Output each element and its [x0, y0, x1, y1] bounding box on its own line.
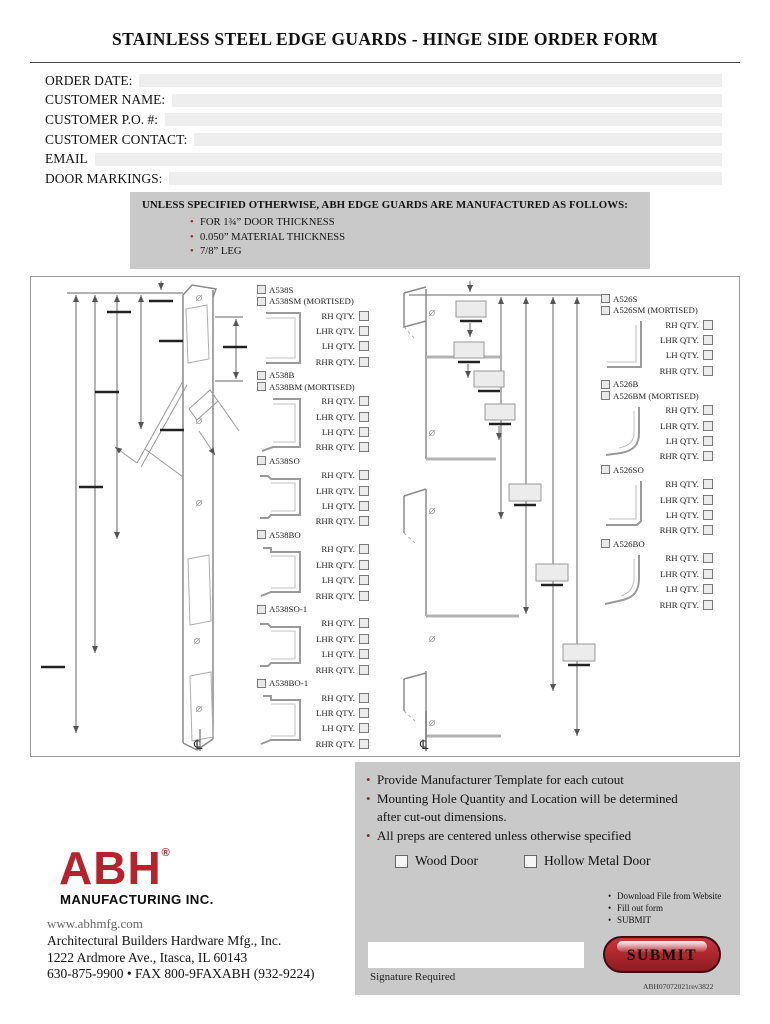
model-checkbox-a538bm[interactable] — [257, 382, 266, 391]
notice-bullet: 0.050” MATERIAL THICKNESS — [190, 231, 640, 246]
model-row: A526BM (MORTISED) — [601, 390, 713, 402]
customer-po-label: CUSTOMER P.O. #: — [45, 112, 158, 128]
qty-row: LHR QTY. — [305, 409, 369, 424]
qty-rows: RH QTY.LHR QTY.LH QTY.RHR QTY. — [305, 690, 369, 752]
field-row: ORDER DATE: — [45, 71, 722, 91]
qty-row: RH QTY. — [649, 551, 713, 566]
qty-label: RHR QTY. — [316, 357, 355, 367]
qty-input-a538so-1-rhrqty[interactable] — [359, 665, 369, 675]
qty-input-a538s-lhqty[interactable] — [359, 341, 369, 351]
qty-label: RHR QTY. — [316, 591, 355, 601]
notice-bullets: FOR 1¾” DOOR THICKNESS 0.050” MATERIAL T… — [190, 216, 640, 260]
qty-rows: RH QTY.LHR QTY.LH QTY.RHR QTY. — [305, 616, 369, 678]
qty-rows: RH QTY.LHR QTY.LH QTY.RHR QTY. — [649, 317, 713, 379]
email-label: EMAIL — [45, 151, 88, 167]
qty-label: LH QTY. — [322, 341, 355, 351]
qty-label: LH QTY. — [666, 436, 699, 446]
a538-group-a538bo: A538BORH QTY.LHR QTY.LH QTY.RHR QTY. — [257, 529, 369, 603]
qty-row: LH QTY. — [305, 647, 369, 662]
model-row: A538S — [257, 284, 369, 296]
field-row: EMAIL — [45, 149, 722, 169]
qty-input-a538bo-rhqty[interactable] — [359, 544, 369, 554]
qty-input-a526s-rhqty[interactable] — [703, 320, 713, 330]
qty-label: LH QTY. — [666, 350, 699, 360]
customer-contact-input[interactable] — [194, 133, 722, 146]
page-title: STAINLESS STEEL EDGE GUARDS - HINGE SIDE… — [0, 29, 770, 50]
manufacturing-notice: UNLESS SPECIFIED OTHERWISE, ABH EDGE GUA… — [130, 192, 650, 269]
qty-label: RHR QTY. — [316, 665, 355, 675]
qty-label: LHR QTY. — [316, 708, 355, 718]
qty-row: RH QTY. — [305, 542, 369, 557]
company-block: ABH® MANUFACTURING INC. www.abhmfg.com A… — [47, 845, 314, 983]
hinge-edge-elevation-drawing: ℄ — [39, 281, 254, 753]
qty-rows: RH QTY.LHR QTY.LH QTY.RHR QTY. — [305, 468, 369, 530]
model-row: A538BO-1 — [257, 677, 369, 689]
diagram-panel: ℄ — [30, 276, 740, 757]
door-type-options: Wood Door Hollow Metal Door — [395, 853, 740, 869]
field-row: DOOR MARKINGS: — [45, 169, 722, 189]
qty-row: RHR QTY. — [305, 588, 369, 603]
door-markings-input[interactable] — [169, 172, 722, 185]
qty-label: RHR QTY. — [660, 525, 699, 535]
qty-label: LH QTY. — [322, 501, 355, 511]
qty-input-a526so-lhqty[interactable] — [703, 510, 713, 520]
customer-contact-label: CUSTOMER CONTACT: — [45, 132, 187, 148]
qty-label: RH QTY. — [321, 470, 355, 480]
field-row: CUSTOMER P.O. #: — [45, 110, 722, 130]
model-checkbox-a538so-1[interactable] — [257, 605, 266, 614]
company-address: 1222 Ardmore Ave., Itasca, IL 60143 — [47, 950, 314, 967]
qty-label: RH QTY. — [321, 693, 355, 703]
registered-mark: ® — [162, 847, 170, 859]
qty-label: LHR QTY. — [316, 412, 355, 422]
qty-row: LHR QTY. — [305, 705, 369, 720]
qty-label: RHR QTY. — [660, 451, 699, 461]
qty-label: RHR QTY. — [316, 516, 355, 526]
qty-input-a526bo-lhrqty[interactable] — [703, 569, 713, 579]
qty-row: RHR QTY. — [649, 449, 713, 464]
qty-input-a538so-rhqty[interactable] — [359, 470, 369, 480]
qty-input-a538bo-1-rhrqty[interactable] — [359, 739, 369, 749]
model-label: A538SM (MORTISED) — [269, 296, 354, 306]
centerline-symbol: ℄ — [419, 738, 429, 753]
qty-input-a526s-lhrqty[interactable] — [703, 335, 713, 345]
qty-row: LHR QTY. — [649, 566, 713, 581]
abh-logo: ABH® — [59, 845, 314, 891]
qty-label: RH QTY. — [321, 618, 355, 628]
order-date-input[interactable] — [139, 74, 722, 87]
qty-row: RHR QTY. — [649, 523, 713, 538]
model-checkbox-a538bo[interactable] — [257, 530, 266, 539]
a526-order-column: A526SA526SM (MORTISED)RH QTY.LHR QTY.LH … — [601, 293, 713, 612]
qty-input-a526so-rhrqty[interactable] — [703, 525, 713, 535]
submission-step: Download File from Website — [608, 890, 721, 902]
qty-input-a538so-rhrqty[interactable] — [359, 516, 369, 526]
qty-input-a526b-rhqty[interactable] — [703, 405, 713, 415]
profile-glyph-cob — [257, 690, 305, 750]
qty-input-a538b-rhrqty[interactable] — [359, 442, 369, 452]
qty-row: LH QTY. — [649, 348, 713, 363]
a538-group-a538so-1: A538SO-1RH QTY.LHR QTY.LH QTY.RHR QTY. — [257, 603, 369, 677]
qty-input-a526bo-rhrqty[interactable] — [703, 600, 713, 610]
qty-label: RHR QTY. — [660, 366, 699, 376]
qty-row: RHR QTY. — [305, 440, 369, 455]
qty-input-a526bo-rhqty[interactable] — [703, 553, 713, 563]
qty-label: RHR QTY. — [660, 600, 699, 610]
qty-row: LHR QTY. — [305, 557, 369, 572]
field-row: CUSTOMER CONTACT: — [45, 130, 722, 150]
profile-glyph-lo — [601, 477, 649, 537]
a526-group-a526s: A526SA526SM (MORTISED)RH QTY.LHR QTY.LH … — [601, 293, 713, 379]
document-revision-number: ABH07072021rev3822 — [643, 982, 713, 991]
qty-row: RHR QTY. — [305, 736, 369, 751]
qty-label: RHR QTY. — [316, 739, 355, 749]
qty-rows: RH QTY.LHR QTY.LH QTY.RHR QTY. — [649, 477, 713, 539]
qty-label: LH QTY. — [666, 584, 699, 594]
qty-rows: RH QTY.LHR QTY.LH QTY.RHR QTY. — [305, 542, 369, 604]
model-checkbox-a538so[interactable] — [257, 456, 266, 465]
qty-input-a538bo-lhrqty[interactable] — [359, 560, 369, 570]
qty-label: LH QTY. — [322, 427, 355, 437]
qty-rows: RH QTY.LHR QTY.LH QTY.RHR QTY. — [649, 551, 713, 613]
model-row: A538BO — [257, 529, 369, 541]
qty-label: LHR QTY. — [660, 421, 699, 431]
profile-glyph-l — [601, 317, 649, 377]
qty-label: RH QTY. — [321, 311, 355, 321]
qty-row: LHR QTY. — [305, 483, 369, 498]
a538-order-column: A538SA538SM (MORTISED)RH QTY.LHR QTY.LH … — [257, 284, 369, 751]
model-checkbox-a538bo-1[interactable] — [257, 679, 266, 688]
hollow-metal-door-checkbox[interactable] — [524, 855, 537, 868]
qty-row: RHR QTY. — [305, 354, 369, 369]
qty-row: LH QTY. — [305, 498, 369, 513]
model-checkbox-a526so[interactable] — [601, 465, 610, 474]
qty-input-a538bo-1-lhrqty[interactable] — [359, 708, 369, 718]
hollow-metal-door-label: Hollow Metal Door — [544, 853, 650, 869]
qty-input-a538b-lhrqty[interactable] — [359, 412, 369, 422]
profile-glyph-lob — [601, 551, 649, 611]
submission-step: SUBMIT — [608, 914, 721, 926]
notice-bullet: FOR 1¾” DOOR THICKNESS — [190, 216, 640, 231]
model-row: A538BM (MORTISED) — [257, 381, 369, 393]
wood-door-label: Wood Door — [415, 853, 478, 869]
qty-input-a538so-1-lhqty[interactable] — [359, 649, 369, 659]
qty-input-a538b-rhqty[interactable] — [359, 396, 369, 406]
model-row: A526BO — [601, 538, 713, 550]
qty-label: LHR QTY. — [316, 634, 355, 644]
qty-row: RH QTY. — [305, 308, 369, 323]
a538-group-a538b: A538BA538BM (MORTISED)RH QTY.LHR QTY.LH … — [257, 370, 369, 456]
qty-rows: RH QTY.LHR QTY.LH QTY.RHR QTY. — [305, 308, 369, 370]
model-checkbox-a526bm[interactable] — [601, 391, 610, 400]
model-checkbox-a538sm[interactable] — [257, 297, 266, 306]
customer-po-input[interactable] — [165, 113, 722, 126]
qty-label: RH QTY. — [321, 544, 355, 554]
model-label: A538B — [269, 370, 294, 380]
submit-button-label: SUBMIT — [605, 938, 719, 971]
model-row: A538SO — [257, 455, 369, 467]
footer-note: All preps are centered unless otherwise … — [365, 827, 695, 846]
a526-group-a526b: A526BA526BM (MORTISED)RH QTY.LHR QTY.LH … — [601, 379, 713, 465]
model-row: A526SM (MORTISED) — [601, 305, 713, 317]
qty-label: RH QTY. — [665, 405, 699, 415]
qty-input-a526b-lhqty[interactable] — [703, 436, 713, 446]
qty-row: RH QTY. — [649, 317, 713, 332]
qty-label: LHR QTY. — [316, 560, 355, 570]
a538-group-a538so: A538SORH QTY.LHR QTY.LH QTY.RHR QTY. — [257, 455, 369, 529]
model-label: A526SO — [613, 465, 644, 475]
hollow-metal-door-option: Hollow Metal Door — [524, 853, 650, 869]
qty-row: RHR QTY. — [305, 514, 369, 529]
model-row: A526S — [601, 293, 713, 305]
model-label: A526B — [613, 379, 638, 389]
qty-label: LHR QTY. — [316, 486, 355, 496]
qty-input-a538s-rhqty[interactable] — [359, 311, 369, 321]
profile-glyph-co — [257, 616, 305, 676]
qty-row: LHR QTY. — [649, 418, 713, 433]
qty-input-a526bo-lhqty[interactable] — [703, 584, 713, 594]
a526-group-a526bo: A526BORH QTY.LHR QTY.LH QTY.RHR QTY. — [601, 538, 713, 612]
qty-row: RH QTY. — [305, 468, 369, 483]
model-row: A538SO-1 — [257, 603, 369, 615]
qty-label: LHR QTY. — [660, 569, 699, 579]
signature-input[interactable] — [368, 942, 584, 968]
qty-label: LHR QTY. — [660, 495, 699, 505]
qty-row: LHR QTY. — [649, 332, 713, 347]
model-checkbox-a538b[interactable] — [257, 371, 266, 380]
qty-row: LH QTY. — [649, 507, 713, 522]
order-date-label: ORDER DATE: — [45, 73, 132, 89]
footer-note: Mounting Hole Quantity and Location will… — [365, 790, 695, 827]
model-checkbox-a526bo[interactable] — [601, 539, 610, 548]
qty-label: LH QTY. — [322, 723, 355, 733]
submit-button[interactable]: SUBMIT — [603, 936, 721, 973]
wood-door-option: Wood Door — [395, 853, 478, 869]
qty-input-a538so-lhqty[interactable] — [359, 501, 369, 511]
qty-row: RHR QTY. — [305, 662, 369, 677]
qty-row: LHR QTY. — [305, 631, 369, 646]
model-checkbox-a538s[interactable] — [257, 285, 266, 294]
a538-group-a538s: A538SA538SM (MORTISED)RH QTY.LHR QTY.LH … — [257, 284, 369, 370]
qty-row: LHR QTY. — [305, 323, 369, 338]
notice-bullet: 7/8” LEG — [190, 245, 640, 260]
qty-label: RH QTY. — [665, 320, 699, 330]
model-checkbox-a526s[interactable] — [601, 294, 610, 303]
signature-required-label: Signature Required — [370, 971, 455, 983]
model-label: A526BM (MORTISED) — [613, 391, 699, 401]
model-row: A538B — [257, 370, 369, 382]
qty-input-a538so-lhrqty[interactable] — [359, 486, 369, 496]
qty-input-a538s-lhrqty[interactable] — [359, 326, 369, 336]
customer-fields: ORDER DATE: CUSTOMER NAME: CUSTOMER P.O.… — [45, 71, 722, 189]
qty-row: RH QTY. — [305, 690, 369, 705]
qty-row: RH QTY. — [305, 616, 369, 631]
profile-glyph-lb — [601, 403, 649, 463]
qty-input-a538s-rhrqty[interactable] — [359, 357, 369, 367]
qty-input-a538bo-1-rhqty[interactable] — [359, 693, 369, 703]
qty-input-a538bo-rhrqty[interactable] — [359, 591, 369, 601]
qty-input-a526s-rhrqty[interactable] — [703, 366, 713, 376]
model-checkbox-a526sm[interactable] — [601, 306, 610, 315]
submission-step: Fill out form — [608, 902, 721, 914]
title-divider — [30, 62, 740, 63]
company-name: Architectural Builders Hardware Mfg., In… — [47, 933, 314, 950]
model-label: A526S — [613, 294, 637, 304]
qty-rows: RH QTY.LHR QTY.LH QTY.RHR QTY. — [305, 394, 369, 456]
qty-input-a538b-lhqty[interactable] — [359, 427, 369, 437]
profile-dimension-drawing: ℄ — [401, 281, 606, 753]
profile-glyph-cb — [257, 394, 305, 454]
model-checkbox-a526b[interactable] — [601, 380, 610, 389]
qty-input-a538bo-1-lhqty[interactable] — [359, 723, 369, 733]
qty-row: RHR QTY. — [649, 363, 713, 378]
qty-input-a538bo-lhqty[interactable] — [359, 575, 369, 585]
submission-steps: Download File from Website Fill out form… — [608, 890, 721, 926]
qty-label: RHR QTY. — [316, 442, 355, 452]
qty-row: LH QTY. — [305, 339, 369, 354]
wood-door-checkbox[interactable] — [395, 855, 408, 868]
qty-label: RH QTY. — [665, 553, 699, 563]
model-label: A538SO — [269, 456, 300, 466]
model-label: A538BO — [269, 530, 301, 540]
a538-group-a538bo-1: A538BO-1RH QTY.LHR QTY.LH QTY.RHR QTY. — [257, 677, 369, 751]
qty-row: LH QTY. — [649, 433, 713, 448]
qty-label: RH QTY. — [321, 396, 355, 406]
qty-input-a526b-rhrqty[interactable] — [703, 451, 713, 461]
door-markings-label: DOOR MARKINGS: — [45, 171, 162, 187]
qty-label: LH QTY. — [666, 510, 699, 520]
email-input[interactable] — [95, 153, 722, 166]
qty-row: LHR QTY. — [649, 492, 713, 507]
footer-notes: Provide Manufacturer Template for each c… — [365, 771, 695, 845]
model-label: A538SO-1 — [269, 604, 307, 614]
profile-glyph-cob — [257, 542, 305, 602]
qty-row: LH QTY. — [305, 572, 369, 587]
customer-name-input[interactable] — [172, 94, 722, 107]
footer-note: Provide Manufacturer Template for each c… — [365, 771, 695, 790]
customer-name-label: CUSTOMER NAME: — [45, 92, 165, 108]
qty-input-a538so-1-lhrqty[interactable] — [359, 634, 369, 644]
qty-input-a538so-1-rhqty[interactable] — [359, 618, 369, 628]
qty-row: RH QTY. — [649, 477, 713, 492]
logo-subtitle: MANUFACTURING INC. — [60, 892, 314, 907]
qty-input-a526s-lhqty[interactable] — [703, 350, 713, 360]
qty-label: LH QTY. — [322, 575, 355, 585]
qty-row: RH QTY. — [305, 394, 369, 409]
model-label: A538S — [269, 285, 293, 295]
model-row: A526B — [601, 379, 713, 391]
model-row: A538SM (MORTISED) — [257, 296, 369, 308]
qty-rows: RH QTY.LHR QTY.LH QTY.RHR QTY. — [649, 403, 713, 465]
qty-label: LH QTY. — [322, 649, 355, 659]
footer-panel: Provide Manufacturer Template for each c… — [355, 762, 740, 995]
company-website-link[interactable]: www.abhmfg.com — [47, 916, 314, 933]
model-label: A526SM (MORTISED) — [613, 305, 698, 315]
profile-glyph-c — [257, 308, 305, 368]
field-row: CUSTOMER NAME: — [45, 91, 722, 111]
qty-row: LH QTY. — [649, 581, 713, 596]
notice-heading: UNLESS SPECIFIED OTHERWISE, ABH EDGE GUA… — [142, 199, 640, 211]
model-label: A526BO — [613, 539, 645, 549]
qty-row: RHR QTY. — [649, 597, 713, 612]
qty-row: RH QTY. — [649, 403, 713, 418]
a526-group-a526so: A526SORH QTY.LHR QTY.LH QTY.RHR QTY. — [601, 464, 713, 538]
qty-row: LH QTY. — [305, 424, 369, 439]
model-label: A538BM (MORTISED) — [269, 382, 355, 392]
qty-label: LHR QTY. — [660, 335, 699, 345]
centerline-symbol: ℄ — [193, 738, 203, 753]
profile-glyph-co — [257, 468, 305, 528]
qty-input-a526so-lhrqty[interactable] — [703, 495, 713, 505]
model-row: A526SO — [601, 464, 713, 476]
qty-label: RH QTY. — [665, 479, 699, 489]
qty-input-a526b-lhrqty[interactable] — [703, 421, 713, 431]
qty-label: LHR QTY. — [316, 326, 355, 336]
qty-input-a526so-rhqty[interactable] — [703, 479, 713, 489]
company-phone: 630-875-9900 • FAX 800-9FAXABH (932-9224… — [47, 966, 314, 983]
qty-row: LH QTY. — [305, 721, 369, 736]
model-label: A538BO-1 — [269, 678, 308, 688]
